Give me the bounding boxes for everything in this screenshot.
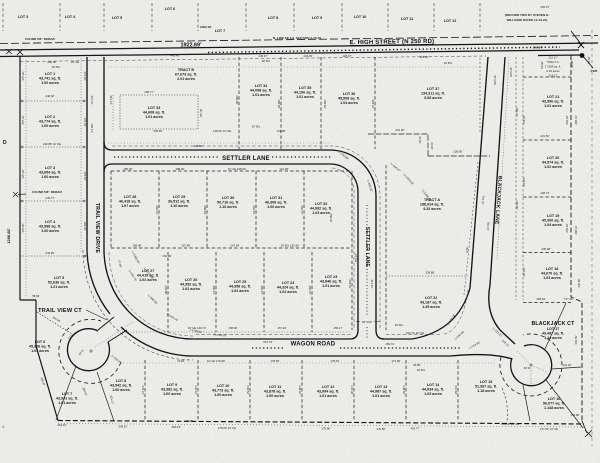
svg-text:175.31’: 175.31’ — [83, 117, 87, 127]
svg-text:LOT 29: LOT 29 — [173, 195, 186, 199]
svg-text:60.00’: 60.00’ — [430, 142, 434, 150]
svg-text:FOUND 5/8” REBAR: FOUND 5/8” REBAR — [25, 37, 55, 41]
svg-text:1.00 acres: 1.00 acres — [41, 81, 59, 85]
svg-text:1.00 acres: 1.00 acres — [41, 229, 59, 233]
svg-text:LOT 5: LOT 5 — [112, 16, 122, 20]
svg-text:44,574 sq. ft.: 44,574 sq. ft. — [542, 161, 564, 165]
svg-text:433.77’: 433.77’ — [410, 427, 420, 431]
svg-text:49,497 sq. ft.: 49,497 sq. ft. — [542, 332, 564, 336]
svg-text:LOT 14: LOT 14 — [427, 383, 440, 387]
svg-text:167.99’: 167.99’ — [181, 244, 191, 248]
svg-text:258.63’: 258.63’ — [203, 205, 207, 215]
svg-text:175.02’: 175.02’ — [83, 71, 87, 81]
svg-text:175.02’: 175.02’ — [21, 169, 25, 179]
svg-text:LOT 9: LOT 9 — [167, 383, 177, 387]
svg-text:30’ B/L: 30’ B/L — [252, 125, 261, 129]
svg-text:175.32’: 175.32’ — [21, 71, 25, 81]
svg-text:44,106 sq. ft.: 44,106 sq. ft. — [294, 91, 316, 95]
svg-text:30’ B/L: 30’ B/L — [52, 65, 61, 69]
svg-text:178.00’ 10’ UE: 178.00’ 10’ UE — [218, 426, 236, 430]
svg-text:1.02 acres: 1.02 acres — [279, 290, 297, 294]
svg-text:10’ UE 158.50’: 10’ UE 158.50’ — [228, 167, 247, 171]
svg-text:43,382 sq. ft.: 43,382 sq. ft. — [161, 388, 183, 392]
svg-text:296.86’: 296.86’ — [515, 200, 519, 210]
svg-text:30’ B/L: 30’ B/L — [444, 61, 453, 65]
svg-text:283.01’: 283.01’ — [155, 205, 159, 215]
svg-text:44,934 sq. ft.: 44,934 sq. ft. — [422, 388, 444, 392]
svg-text:203.18’: 203.18’ — [565, 223, 569, 233]
svg-text:208.31’: 208.31’ — [574, 115, 578, 125]
svg-text:LOT 8: LOT 8 — [268, 16, 278, 20]
svg-text:248.82’: 248.82’ — [402, 385, 406, 395]
svg-text:LOT 34: LOT 34 — [255, 84, 268, 88]
svg-text:LOT 36: LOT 36 — [343, 92, 356, 96]
svg-text:LOT 25: LOT 25 — [234, 280, 247, 284]
svg-text:LOT 24: LOT 24 — [282, 281, 295, 285]
svg-text:44,608 sq. ft.: 44,608 sq. ft. — [143, 111, 165, 115]
svg-text:1.00 acres: 1.00 acres — [41, 175, 59, 179]
svg-text:178.90’: 178.90’ — [270, 359, 280, 363]
svg-text:43,878 sq. ft.: 43,878 sq. ft. — [264, 390, 286, 394]
svg-text:LOT 16: LOT 16 — [548, 397, 561, 401]
svg-text:1.00 acres: 1.00 acres — [214, 393, 232, 397]
svg-text:LOT 30: LOT 30 — [222, 196, 235, 200]
svg-text:221.50’: 221.50’ — [540, 134, 550, 138]
svg-text:235.98’: 235.98’ — [541, 247, 551, 251]
svg-text:230.82’: 230.82’ — [153, 129, 163, 133]
svg-text:128.97’: 128.97’ — [342, 54, 352, 58]
svg-text:LOT 23: LOT 23 — [325, 275, 338, 279]
svg-text:143.05’: 143.05’ — [303, 54, 313, 58]
svg-text:268.64’: 268.64’ — [536, 297, 546, 301]
svg-text:45,508 sq. ft.: 45,508 sq. ft. — [338, 97, 360, 101]
svg-text:43,773 sq. ft.: 43,773 sq. ft. — [212, 389, 234, 393]
svg-text:43,994 sq. ft.: 43,994 sq. ft. — [317, 390, 339, 394]
svg-text:167.94’: 167.94’ — [230, 244, 240, 248]
svg-text:312.47’: 312.47’ — [109, 95, 113, 105]
svg-text:179.98’: 179.98’ — [570, 413, 580, 417]
svg-text:LOT 3: LOT 3 — [45, 166, 55, 170]
svg-text:177.99’: 177.99’ — [391, 359, 401, 363]
svg-text:1.01 acres: 1.01 acres — [58, 401, 76, 405]
svg-text:203.19’: 203.19’ — [565, 115, 569, 125]
svg-text:46,308 sq. ft.: 46,308 sq. ft. — [265, 201, 287, 205]
svg-text:1.02 acres: 1.02 acres — [139, 278, 157, 282]
svg-text:1.45 acres: 1.45 acres — [422, 305, 440, 309]
svg-text:250.00’: 250.00’ — [47, 60, 57, 64]
svg-text:36,512 sq. ft.: 36,512 sq. ft. — [168, 200, 190, 204]
svg-text:298.33’: 298.33’ — [574, 225, 578, 235]
svg-text:TRAIL VIEW DRIVE: TRAIL VIEW DRIVE — [94, 203, 100, 254]
svg-text:152.99’: 152.99’ — [162, 254, 172, 258]
svg-text:214.12’: 214.12’ — [548, 74, 558, 78]
svg-text:FOUND 5/8” REBAR: FOUND 5/8” REBAR — [32, 190, 62, 194]
svg-text:277.64’ 10’ UE: 277.64’ 10’ UE — [540, 427, 558, 431]
svg-text:56,077 sq. ft.: 56,077 sq. ft. — [543, 402, 565, 406]
svg-text:69.85’: 69.85’ — [413, 363, 421, 367]
svg-text:1.02 acres: 1.02 acres — [182, 287, 200, 291]
svg-text:433.58’: 433.58’ — [193, 144, 203, 148]
svg-text:1922.69’: 1922.69’ — [181, 43, 202, 49]
svg-text:443.43’: 443.43’ — [170, 54, 180, 58]
svg-text:219.00’: 219.00’ — [395, 128, 405, 132]
svg-text:783.14’: 783.14’ — [90, 123, 94, 133]
svg-text:318.61’: 318.61’ — [371, 99, 375, 109]
svg-text:1.01 acres: 1.01 acres — [145, 115, 163, 119]
svg-text:176.86’: 176.86’ — [376, 427, 386, 431]
svg-text:43,996 sq. ft.: 43,996 sq. ft. — [542, 100, 564, 104]
svg-text:1.06 acres: 1.06 acres — [267, 205, 285, 209]
svg-text:44,987 sq. ft.: 44,987 sq. ft. — [370, 390, 392, 394]
svg-text:LOT 17: LOT 17 — [547, 327, 560, 331]
svg-text:1.01 acres: 1.01 acres — [544, 104, 562, 108]
svg-text:55.96’: 55.96’ — [587, 56, 591, 64]
svg-text:1.01 acres: 1.01 acres — [372, 394, 390, 398]
svg-text:296.31’: 296.31’ — [515, 107, 519, 117]
svg-text:763.37’: 763.37’ — [486, 221, 491, 231]
svg-text:1.04 acres: 1.04 acres — [340, 101, 358, 105]
svg-text:121.38’: 121.38’ — [279, 167, 289, 171]
svg-text:LOT 11: LOT 11 — [269, 385, 281, 389]
svg-text:17,659 sq. ft.: 17,659 sq. ft. — [545, 65, 561, 69]
svg-text:249.88’ 10’ UE: 249.88’ 10’ UE — [43, 142, 61, 146]
svg-text:32’ R/W: 32’ R/W — [493, 75, 497, 85]
svg-text:1.01 acres: 1.01 acres — [252, 93, 270, 97]
svg-text:LOT 32: LOT 32 — [315, 202, 328, 206]
svg-text:LOT 6: LOT 6 — [35, 340, 45, 344]
svg-text:LOT 7: LOT 7 — [215, 29, 225, 33]
svg-text:43,741 sq. ft.: 43,741 sq. ft. — [39, 77, 61, 81]
svg-text:44,098 sq. ft.: 44,098 sq. ft. — [250, 89, 272, 93]
svg-text:LOT 6: LOT 6 — [165, 7, 175, 11]
svg-text:58.96’: 58.96’ — [540, 61, 544, 69]
svg-text:LOT 12: LOT 12 — [322, 385, 335, 389]
svg-text:4.32 acres: 4.32 acres — [423, 207, 441, 211]
svg-text:LOT 9: LOT 9 — [312, 16, 322, 20]
svg-text:280.11’: 280.11’ — [212, 286, 216, 295]
svg-text:67,673 sq. ft.: 67,673 sq. ft. — [175, 73, 197, 77]
svg-text:283.72’: 283.72’ — [308, 285, 312, 295]
svg-text:45,306 sq. ft.: 45,306 sq. ft. — [29, 345, 51, 349]
svg-text:1.01 acres: 1.01 acres — [322, 284, 340, 288]
svg-text:244.47’: 244.47’ — [141, 385, 145, 395]
svg-text:30’ B/L: 30’ B/L — [522, 116, 526, 125]
svg-text:LOT 13: LOT 13 — [375, 385, 388, 389]
svg-text:349.67’: 349.67’ — [118, 425, 128, 429]
svg-text:LOT 8: LOT 8 — [116, 379, 126, 383]
svg-text:51,367 sq. ft.: 51,367 sq. ft. — [475, 385, 497, 389]
svg-text:1.00 acres: 1.00 acres — [112, 388, 130, 392]
svg-text:175.30’: 175.30’ — [21, 223, 25, 233]
svg-text:1.00 acres: 1.00 acres — [41, 124, 59, 128]
svg-text:278.89’: 278.89’ — [164, 285, 168, 295]
svg-text:43,774 sq. ft.: 43,774 sq. ft. — [39, 120, 61, 124]
svg-text:44,982 sq. ft.: 44,982 sq. ft. — [310, 207, 332, 211]
svg-text:LOT 35: LOT 35 — [299, 86, 312, 90]
svg-text:188.36’: 188.36’ — [175, 167, 185, 171]
svg-text:439.59’ 10’ UE: 439.59’ 10’ UE — [501, 422, 519, 426]
svg-text:LOT 21: LOT 21 — [547, 95, 560, 99]
svg-text:2.01 acres: 2.01 acres — [177, 77, 195, 81]
svg-text:44,358 sq. ft.: 44,358 sq. ft. — [229, 285, 251, 289]
svg-text:20’ B/L: 20’ B/L — [262, 59, 271, 63]
svg-text:155.17’: 155.17’ — [333, 326, 343, 330]
svg-text:3.08 acres: 3.08 acres — [424, 96, 442, 100]
svg-text:TRACT B: TRACT B — [178, 68, 195, 72]
svg-text:LOT 37: LOT 37 — [427, 87, 440, 91]
svg-text:322.47’: 322.47’ — [90, 95, 94, 105]
svg-text:298.77’: 298.77’ — [144, 90, 154, 94]
svg-text:178.00’: 178.00’ — [321, 427, 331, 431]
svg-text:157.94’: 157.94’ — [277, 326, 287, 330]
svg-text:43,542 sq. ft.: 43,542 sq. ft. — [110, 384, 132, 388]
svg-text:44,352 sq. ft.: 44,352 sq. ft. — [180, 283, 202, 287]
svg-text:LOT 10: LOT 10 — [354, 15, 367, 19]
svg-text:SETTLER LANE: SETTLER LANE — [364, 227, 370, 268]
svg-text:43,846 sq. ft.: 43,846 sq. ft. — [320, 280, 342, 284]
svg-text:261.83’: 261.83’ — [454, 385, 458, 395]
svg-text:LOT 15: LOT 15 — [480, 380, 493, 384]
svg-text:60’ R/W: 60’ R/W — [362, 320, 372, 324]
svg-text:211.17’: 211.17’ — [549, 56, 558, 60]
svg-text:299.84’: 299.84’ — [277, 99, 281, 109]
svg-text:293.72’: 293.72’ — [300, 205, 304, 215]
svg-text:LOT 1: LOT 1 — [45, 72, 55, 76]
svg-text:1.10 acres: 1.10 acres — [170, 204, 188, 208]
svg-text:169.72’ 20’ UE: 169.72’ 20’ UE — [406, 331, 424, 335]
svg-text:20’ UE: 20’ UE — [71, 60, 79, 64]
svg-text:60’ R: 60’ R — [524, 366, 530, 370]
svg-text:158.00’: 158.00’ — [228, 326, 238, 330]
svg-text:175.31’: 175.31’ — [21, 115, 25, 125]
svg-text:43,187 sq. ft.: 43,187 sq. ft. — [420, 301, 442, 305]
svg-text:43,941 sq. ft.: 43,941 sq. ft. — [56, 397, 78, 401]
svg-text:1.00 acres: 1.00 acres — [163, 392, 181, 396]
svg-text:2483.30’: 2483.30’ — [200, 25, 212, 29]
svg-text:248.92’: 248.92’ — [45, 94, 55, 98]
svg-text:LOT 2: LOT 2 — [45, 115, 55, 119]
svg-text:134,311 sq. ft.: 134,311 sq. ft. — [421, 92, 445, 96]
svg-text:POB: POB — [591, 69, 598, 73]
svg-text:50,716 sq. ft.: 50,716 sq. ft. — [217, 201, 239, 205]
svg-text:LOT 33: LOT 33 — [148, 106, 161, 110]
svg-text:246.52’: 246.52’ — [246, 385, 250, 395]
svg-text:0.39 acres: 0.39 acres — [546, 69, 560, 73]
svg-text:248.02’: 248.02’ — [298, 385, 302, 395]
svg-text:249.77’: 249.77’ — [45, 196, 55, 200]
svg-text:D: D — [3, 140, 7, 146]
svg-text:J.: J. — [2, 425, 5, 429]
svg-text:32’ R/W: 32’ R/W — [509, 67, 513, 77]
svg-text:283.01’: 283.01’ — [252, 205, 256, 215]
svg-text:169-19’: 169-19’ — [171, 425, 181, 429]
svg-text:WILLIAMS DATED 12-13-21): WILLIAMS DATED 12-13-21) — [507, 18, 548, 22]
svg-text:30’ UE: 30’ UE — [199, 109, 203, 117]
svg-text:N. LINE SE 1/4, SECTION 3-15-2: N. LINE SE 1/4, SECTION 3-15-29 — [273, 36, 321, 40]
svg-text:1.02 acres: 1.02 acres — [231, 289, 249, 293]
svg-text:30’ B/L: 30’ B/L — [417, 368, 426, 372]
svg-text:188,914 sq. ft.: 188,914 sq. ft. — [420, 203, 444, 207]
svg-text:LOT 10: LOT 10 — [217, 384, 230, 388]
svg-text:36.6’: 36.6’ — [465, 247, 469, 254]
svg-text:228.74’: 228.74’ — [540, 191, 550, 195]
svg-text:1.02 acres: 1.02 acres — [544, 165, 562, 169]
svg-text:141.98’: 141.98’ — [276, 129, 286, 133]
svg-text:1.00 acres: 1.00 acres — [266, 394, 284, 398]
svg-text:LOT 12: LOT 12 — [444, 19, 457, 23]
svg-text:148.09’ 10’ UE: 148.09’ 10’ UE — [213, 129, 231, 133]
svg-text:246.01’: 246.01’ — [194, 385, 198, 395]
svg-text:48.98’: 48.98’ — [570, 60, 574, 68]
svg-text:193.33’: 193.33’ — [83, 221, 87, 231]
svg-text:345.97’: 345.97’ — [540, 5, 550, 9]
svg-text:1286.85’: 1286.85’ — [6, 228, 11, 244]
svg-text:235.86’: 235.86’ — [577, 278, 581, 288]
svg-text:30.00’: 30.00’ — [418, 136, 422, 144]
svg-text:1.14 acres: 1.14 acres — [544, 336, 562, 340]
svg-text:175.02’: 175.02’ — [83, 171, 87, 181]
svg-text:LOT 3: LOT 3 — [18, 15, 28, 19]
svg-text:1.03 acres: 1.03 acres — [312, 211, 330, 215]
svg-text:1.04 acres: 1.04 acres — [544, 223, 562, 227]
svg-text:LOT 4: LOT 4 — [45, 220, 56, 224]
svg-text:WAGON ROAD: WAGON ROAD — [291, 342, 336, 348]
svg-text:45,300 sq. ft.: 45,300 sq. ft. — [542, 219, 564, 223]
svg-text:1.01 acres: 1.01 acres — [319, 394, 337, 398]
svg-text:LOT 18: LOT 18 — [546, 267, 559, 271]
svg-text:751.37’: 751.37’ — [354, 253, 358, 263]
svg-text:249.97’: 249.97’ — [533, 46, 543, 50]
svg-text:145.97’: 145.97’ — [258, 54, 268, 58]
svg-text:43,654 sq. ft.: 43,654 sq. ft. — [39, 171, 61, 175]
svg-text:LOT 22: LOT 22 — [425, 296, 438, 300]
svg-text:LOT 5: LOT 5 — [54, 276, 64, 280]
svg-text:249.85’: 249.85’ — [45, 251, 55, 255]
svg-text:328.88’: 328.88’ — [425, 271, 435, 275]
svg-text:299.72’: 299.72’ — [385, 342, 395, 346]
svg-text:1.01 acres: 1.01 acres — [296, 95, 314, 99]
svg-text:46,418 sq. ft.: 46,418 sq. ft. — [119, 200, 141, 204]
svg-text:416.60’: 416.60’ — [419, 55, 429, 59]
svg-text:LOT 19: LOT 19 — [547, 214, 560, 218]
svg-text:LOT 26: LOT 26 — [185, 278, 198, 282]
svg-text:SETTLER LANE: SETTLER LANE — [222, 156, 270, 162]
svg-text:343.59’: 343.59’ — [574, 335, 578, 345]
svg-text:58.09’: 58.09’ — [32, 294, 40, 298]
svg-text:264.19’: 264.19’ — [57, 423, 67, 427]
svg-text:1.16 acres: 1.16 acres — [219, 205, 237, 209]
svg-text:228.00’: 228.00’ — [453, 150, 463, 154]
svg-text:651.79’: 651.79’ — [263, 340, 273, 344]
svg-text:299.84’: 299.84’ — [323, 99, 327, 109]
svg-text:TRAIL VIEW CT: TRAIL VIEW CT — [38, 308, 82, 314]
svg-text:30’ B/L: 30’ B/L — [395, 323, 404, 327]
svg-text:10’ UE 179.09’: 10’ UE 179.09’ — [207, 359, 226, 363]
svg-text:20’ B/L 152.99’: 20’ B/L 152.99’ — [281, 244, 300, 248]
svg-text:178.61’: 178.61’ — [330, 359, 340, 363]
svg-text:1.07 acres: 1.07 acres — [121, 204, 139, 208]
svg-text:414.57’: 414.57’ — [370, 279, 374, 289]
svg-text:265.04’: 265.04’ — [348, 279, 352, 289]
svg-text:(RECORD TIES BY STEVEN D.: (RECORD TIES BY STEVEN D. — [505, 13, 550, 17]
svg-text:203.18’: 203.18’ — [522, 177, 526, 187]
svg-text:LOT 7: LOT 7 — [62, 392, 72, 396]
svg-text:299.85’: 299.85’ — [235, 95, 239, 105]
svg-text:247.39’: 247.39’ — [350, 385, 354, 395]
svg-text:LOT 31: LOT 31 — [270, 196, 283, 200]
svg-text:1.18 acres: 1.18 acres — [477, 389, 495, 393]
svg-text:79.65’: 79.65’ — [177, 359, 185, 363]
svg-text:1.21 acres: 1.21 acres — [50, 285, 68, 289]
svg-text:1.04 acres: 1.04 acres — [31, 349, 49, 353]
svg-text:44,324 sq. ft.: 44,324 sq. ft. — [277, 286, 299, 290]
svg-text:LOT 28: LOT 28 — [124, 195, 137, 199]
svg-text:LOT 20: LOT 20 — [547, 156, 560, 160]
svg-text:158.09’: 158.09’ — [132, 244, 142, 248]
svg-text:44,670 sq. ft.: 44,670 sq. ft. — [541, 272, 563, 276]
svg-text:203.18’: 203.18’ — [522, 267, 526, 277]
svg-text:751.37’: 751.37’ — [481, 195, 486, 205]
svg-text:141.32’: 141.32’ — [562, 363, 572, 367]
svg-text:1.148 acres: 1.148 acres — [544, 406, 564, 410]
svg-text:12.65’: 12.65’ — [185, 419, 193, 423]
svg-text:TRACT C: TRACT C — [547, 60, 559, 64]
svg-text:LOT 4: LOT 4 — [65, 15, 76, 19]
svg-text:1.03 acres: 1.03 acres — [543, 276, 561, 280]
svg-text:258.62’: 258.62’ — [329, 213, 333, 223]
svg-text:185.36’: 185.36’ — [123, 167, 133, 171]
svg-text:7.5’ UE: 7.5’ UE — [563, 297, 572, 301]
svg-text:52,636 sq. ft.: 52,636 sq. ft. — [48, 281, 70, 285]
svg-text:283.72’: 283.72’ — [260, 285, 264, 295]
svg-text:43,588 sq. ft.: 43,588 sq. ft. — [39, 225, 61, 229]
svg-text:1.03 acres: 1.03 acres — [424, 392, 442, 396]
svg-text:LOT 11: LOT 11 — [401, 17, 413, 21]
